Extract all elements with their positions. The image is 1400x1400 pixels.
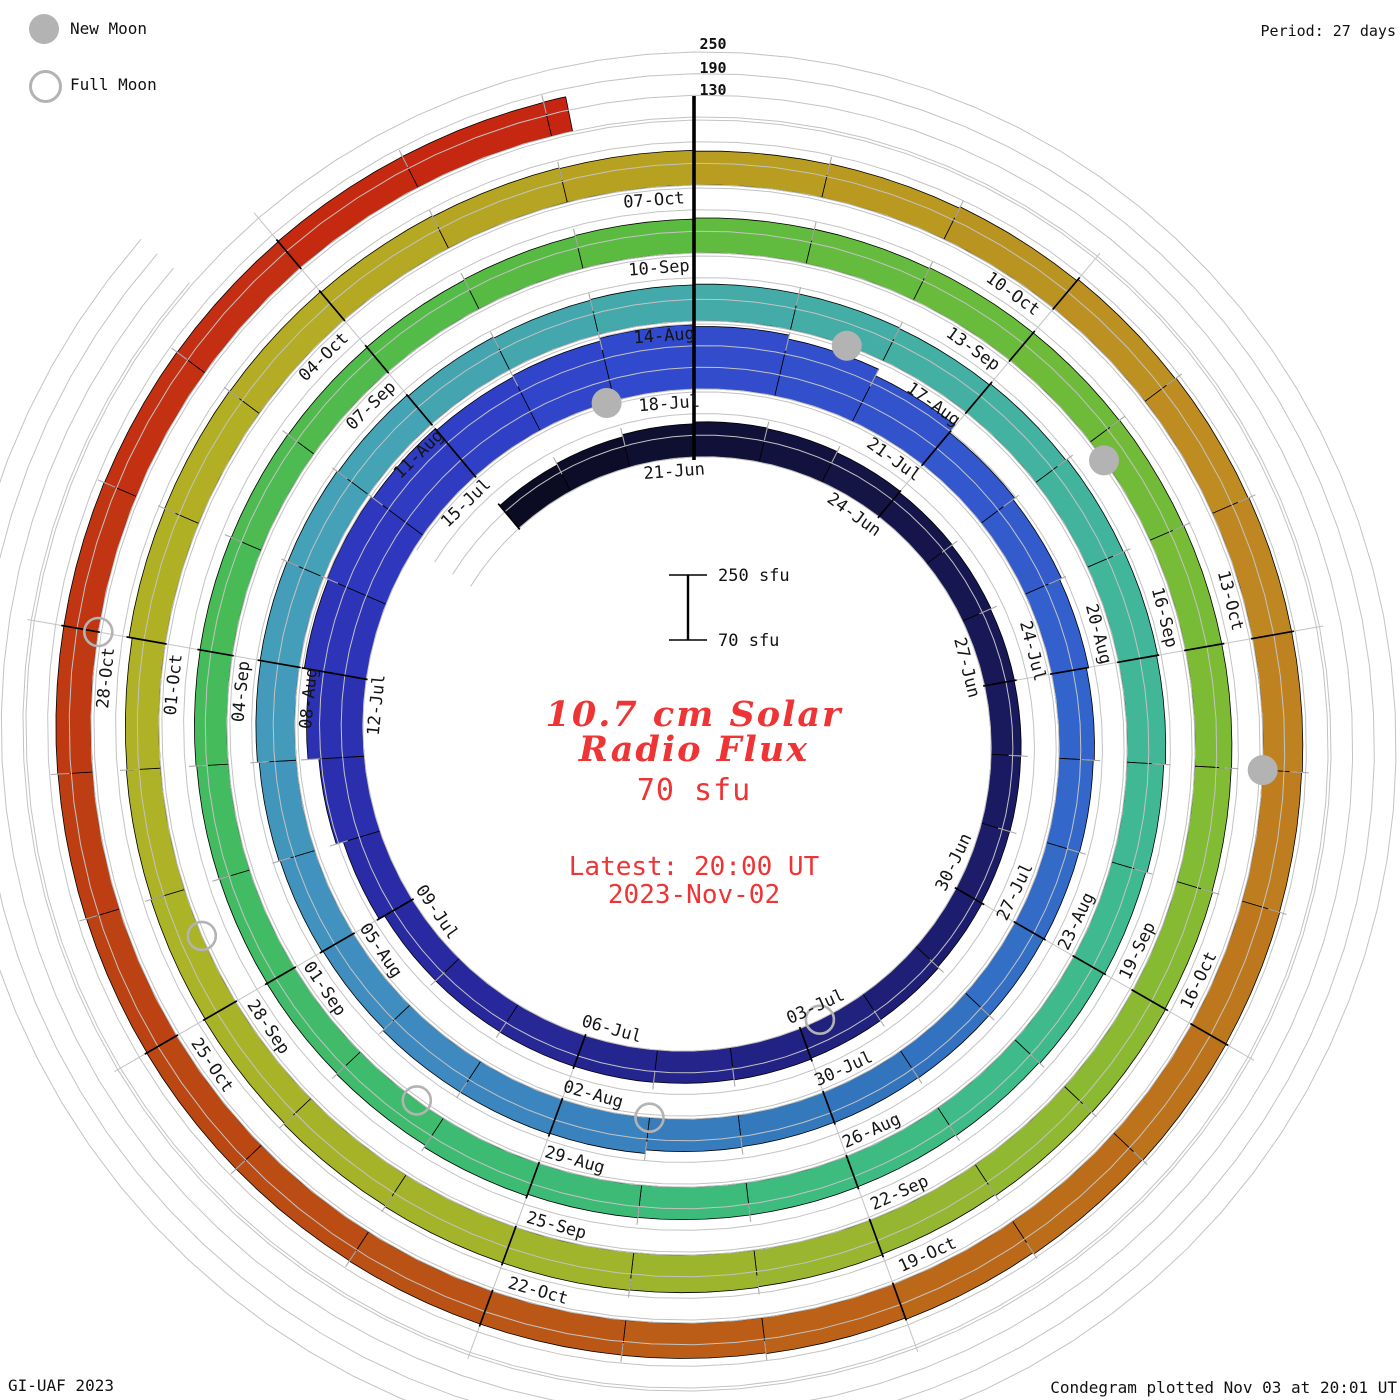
- new-moon-marker: [832, 331, 862, 361]
- date-label: 18-Jul: [638, 392, 701, 417]
- new-moon-icon: [29, 14, 59, 44]
- flux-bar: [901, 993, 990, 1078]
- flux-bar: [847, 1108, 956, 1187]
- grid-value-250: 250: [653, 35, 773, 53]
- date-label: 01-Oct: [161, 653, 187, 716]
- flux-bar: [646, 1115, 742, 1151]
- flux-bar: [629, 1250, 758, 1293]
- flux-bar: [58, 772, 119, 919]
- flux-bar: [460, 1061, 562, 1134]
- flux-bar: [385, 1175, 515, 1263]
- flux-bar: [1112, 762, 1164, 873]
- flux-bar: [654, 1048, 734, 1084]
- flux-bar: [806, 229, 929, 300]
- date-label: 21-Jun: [643, 459, 706, 484]
- date-label: 04-Sep: [228, 660, 254, 723]
- flux-bar: [638, 1183, 750, 1220]
- credit-right: Condegram plotted Nov 03 at 20:01 UT: [1050, 1378, 1397, 1397]
- date-label: 10-Sep: [628, 256, 691, 281]
- scale-max-label: 250 sfu: [718, 566, 790, 586]
- flux-bar: [694, 151, 830, 197]
- new-moon-marker: [592, 388, 622, 418]
- flux-bar: [129, 509, 199, 644]
- full-moon-icon: [29, 70, 62, 103]
- new-moon-label: New Moon: [70, 19, 147, 38]
- date-label: 28-Oct: [93, 646, 119, 709]
- flux-bar: [694, 327, 789, 396]
- latest-time-label: Latest: 20:00 UT: [294, 852, 1094, 882]
- flux-bar: [464, 236, 583, 309]
- scale-min-label: 70 sfu: [718, 631, 779, 651]
- grid-value-190: 190: [653, 59, 773, 77]
- new-moon-marker: [1089, 445, 1119, 475]
- flux-bar: [64, 483, 137, 633]
- full-moon-label: Full Moon: [70, 75, 157, 94]
- credit-left: GI-UAF 2023: [8, 1376, 114, 1395]
- flux-bar: [738, 1092, 834, 1146]
- flux-bar: [938, 1040, 1039, 1136]
- flux-bar: [1015, 956, 1104, 1063]
- flux-bar: [402, 102, 551, 187]
- flux-bar: [126, 768, 184, 899]
- flux-bar: [200, 537, 261, 655]
- flux-bar: [500, 1005, 585, 1067]
- flux-bar: [746, 1156, 858, 1215]
- current-flux-value: 70 sfu: [294, 773, 1094, 808]
- flux-bar: [622, 1318, 766, 1359]
- flux-bar: [557, 437, 630, 492]
- grid-value-130: 130: [653, 81, 773, 99]
- flux-bar: [762, 1284, 906, 1354]
- latest-date-label: 2023-Nov-02: [294, 880, 1094, 910]
- chart-title-line2: Radio Flux: [294, 729, 1094, 770]
- flux-bar: [194, 650, 232, 766]
- flux-bar: [694, 422, 767, 462]
- date-label: 07-Oct: [623, 188, 686, 213]
- condegram-plot: 250 sfu70 sfu21-Jun24-Jun27-Jun30-Jun03-…: [0, 0, 1400, 1400]
- flux-bar: [220, 870, 295, 983]
- flux-bar: [754, 1220, 883, 1287]
- flux-bar: [197, 764, 250, 879]
- flux-bar: [694, 218, 814, 264]
- scale-bar: 250 sfu70 sfu: [669, 566, 790, 651]
- period-label: Period: 27 days: [1261, 22, 1396, 40]
- flux-bar: [1242, 770, 1302, 912]
- flux-bar: [730, 1029, 811, 1080]
- new-moon-marker: [1248, 755, 1278, 785]
- flux-bar: [256, 661, 299, 763]
- flux-bar: [151, 890, 236, 1020]
- flux-bar: [863, 946, 939, 1020]
